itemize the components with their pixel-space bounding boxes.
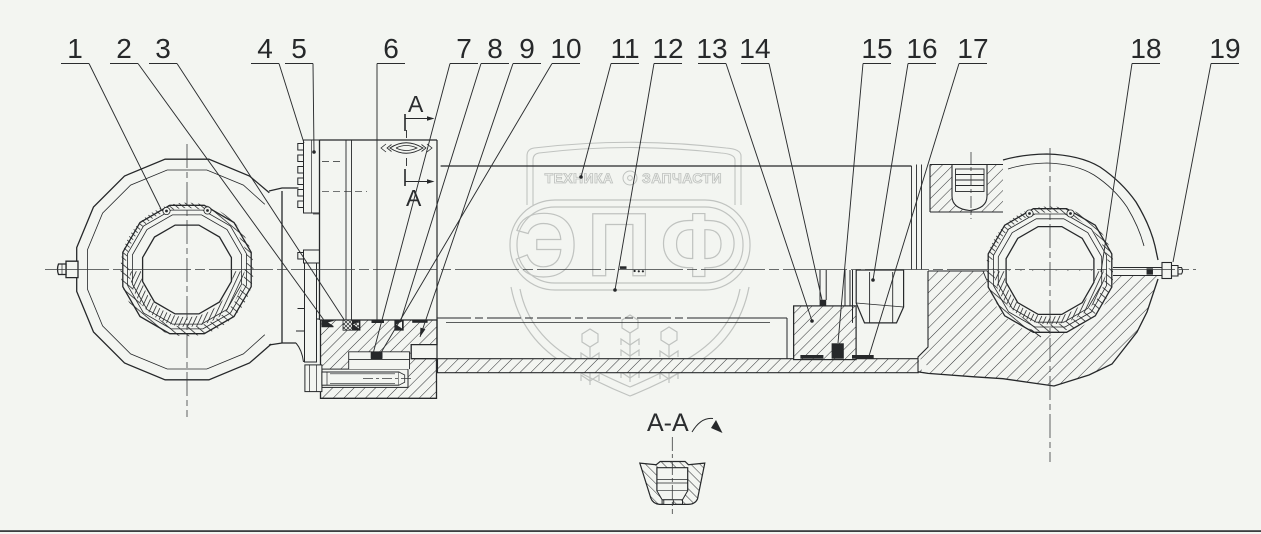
svg-text:ТЕХНИКА: ТЕХНИКА (545, 170, 614, 186)
svg-text:A-A: A-A (647, 409, 689, 437)
svg-text:8: 8 (487, 33, 503, 64)
svg-text:14: 14 (739, 33, 770, 64)
svg-text:A: A (408, 91, 424, 117)
svg-text:17: 17 (957, 33, 988, 64)
svg-text:11: 11 (610, 33, 639, 64)
svg-text:1: 1 (67, 33, 83, 64)
svg-text:19: 19 (1209, 33, 1240, 64)
svg-text:18: 18 (1130, 33, 1161, 64)
svg-text:9: 9 (519, 33, 535, 64)
svg-text:ЗАПЧАСТИ: ЗАПЧАСТИ (642, 170, 722, 186)
svg-text:6: 6 (383, 33, 399, 64)
svg-text:2: 2 (116, 33, 132, 64)
svg-text:12: 12 (652, 33, 683, 64)
svg-text:3: 3 (155, 33, 171, 64)
svg-text:15: 15 (861, 33, 892, 64)
svg-text:13: 13 (696, 33, 727, 64)
svg-text:ЭПФ: ЭПФ (514, 196, 747, 296)
svg-text:5: 5 (291, 33, 307, 64)
svg-text:7: 7 (456, 33, 472, 64)
svg-text:4: 4 (257, 33, 273, 64)
svg-text:10: 10 (550, 33, 581, 64)
svg-text:16: 16 (906, 33, 937, 64)
